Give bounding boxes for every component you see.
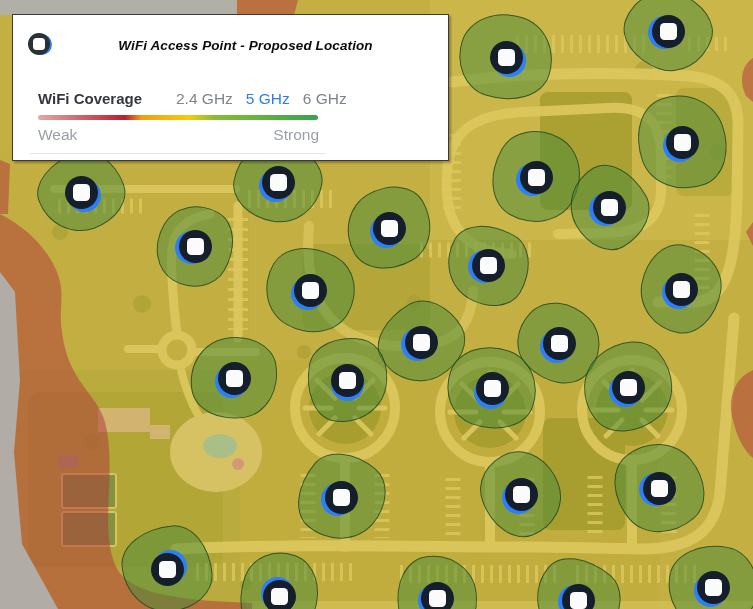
ap-square-icon	[270, 174, 287, 191]
wifi-ap-marker[interactable]	[325, 481, 358, 514]
ap-square-icon	[226, 370, 243, 387]
wifi-ap-marker[interactable]	[262, 166, 295, 199]
wifi-ap-marker[interactable]	[697, 571, 730, 604]
band-tab-5ghz[interactable]: 5 GHz	[246, 90, 290, 108]
wifi-ap-marker[interactable]	[476, 372, 509, 405]
ap-square-icon	[333, 489, 350, 506]
ap-square-icon	[528, 169, 545, 186]
coverage-label: WiFi Coverage	[38, 90, 142, 107]
wifi-ap-marker[interactable]	[294, 274, 327, 307]
wifi-ap-marker[interactable]	[643, 472, 676, 505]
wifi-ap-marker[interactable]	[151, 553, 184, 586]
wifi-ap-marker[interactable]	[179, 230, 212, 263]
ap-square-icon	[551, 335, 568, 352]
wifi-ap-marker[interactable]	[490, 41, 523, 74]
ap-square-icon	[673, 281, 690, 298]
wifi-ap-marker[interactable]	[562, 584, 595, 609]
wifi-ap-marker[interactable]	[373, 212, 406, 245]
ap-square-icon	[271, 588, 288, 605]
ap-square-icon	[381, 220, 398, 237]
access-point-icon	[28, 33, 52, 57]
wifi-ap-marker[interactable]	[331, 364, 364, 397]
wifi-ap-marker[interactable]	[263, 580, 296, 609]
ap-square-icon	[651, 480, 668, 497]
ap-square-icon	[429, 590, 446, 607]
ap-square-icon	[513, 486, 530, 503]
wifi-ap-marker[interactable]	[421, 582, 454, 609]
band-tab-2-4ghz[interactable]: 2.4 GHz	[176, 90, 233, 108]
ap-square-icon	[339, 372, 356, 389]
ap-square-icon	[413, 334, 430, 351]
strong-label: Strong	[273, 126, 319, 144]
legend-title: WiFi Access Point - Proposed Location	[73, 38, 418, 53]
ap-square-icon	[660, 23, 677, 40]
wifi-ap-marker[interactable]	[652, 15, 685, 48]
weak-label: Weak	[38, 126, 77, 144]
wifi-ap-marker[interactable]	[666, 126, 699, 159]
ap-square-icon	[498, 49, 515, 66]
scale-labels: Weak Strong	[38, 126, 319, 144]
ap-square-icon	[187, 238, 204, 255]
ap-square-icon	[570, 592, 587, 609]
wifi-ap-marker[interactable]	[520, 161, 553, 194]
ap-square-icon	[302, 282, 319, 299]
ap-square-icon	[33, 38, 45, 50]
ap-square-icon	[484, 380, 501, 397]
ap-square-icon	[705, 579, 722, 596]
band-tab-6ghz[interactable]: 6 GHz	[303, 90, 347, 108]
wifi-ap-marker[interactable]	[505, 478, 538, 511]
ap-square-icon	[73, 184, 90, 201]
wifi-ap-marker[interactable]	[405, 326, 438, 359]
wifi-ap-marker[interactable]	[543, 327, 576, 360]
band-tabs: 2.4 GHz 5 GHz 6 GHz	[176, 90, 347, 108]
legend-panel: WiFi Access Point - Proposed Location Wi…	[12, 14, 449, 161]
coverage-map-canvas[interactable]: WiFi Access Point - Proposed Location Wi…	[0, 0, 753, 609]
wifi-ap-marker[interactable]	[65, 176, 98, 209]
wifi-ap-marker[interactable]	[218, 362, 251, 395]
ap-square-icon	[601, 199, 618, 216]
ap-square-icon	[620, 379, 637, 396]
wifi-ap-marker[interactable]	[665, 273, 698, 306]
wifi-ap-marker[interactable]	[612, 371, 645, 404]
legend-divider	[29, 153, 326, 154]
wifi-ap-marker[interactable]	[472, 249, 505, 282]
signal-gradient-bar	[38, 115, 318, 120]
wifi-ap-marker[interactable]	[593, 191, 626, 224]
ap-square-icon	[674, 134, 691, 151]
ap-square-icon	[480, 257, 497, 274]
ap-square-icon	[159, 561, 176, 578]
